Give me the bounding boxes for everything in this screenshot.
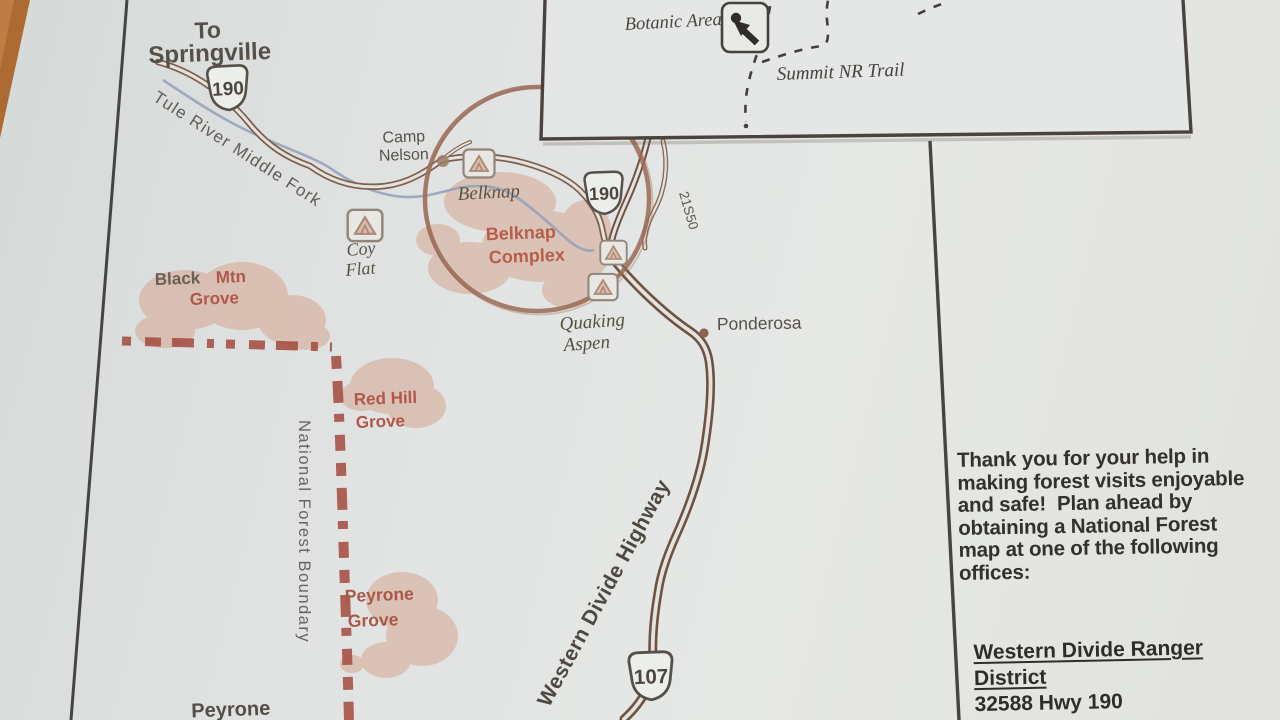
forest-boundary-dashes (122, 341, 349, 720)
peyrone-grove-label-2: Grove (347, 609, 399, 631)
peyrone-grove-label-1: Peyrone (344, 584, 414, 606)
black-mtn-label-word2: Mtn (215, 267, 246, 287)
highway-190-shield-west: 190 (207, 65, 249, 111)
photographed-forest-map-page: Botanic Area Summit NR Trail 190 190 107… (0, 0, 1280, 720)
coy-flat-label-1: Coy (346, 238, 377, 260)
belknap-complex-label-1: Belknap (485, 222, 556, 244)
black-mtn-label-grove: Grove (189, 288, 239, 309)
quaking-aspen-label-1: Quaking (559, 309, 626, 335)
coy-flat-label-2: Flat (344, 257, 378, 280)
red-hill-grove-label-2: Grove (355, 411, 405, 432)
inset-panel: Botanic Area Summit NR Trail (541, 0, 1191, 144)
ponderosa-label: Ponderosa (717, 313, 802, 334)
camp-nelson-junction-dot (437, 155, 449, 167)
map-left-border (71, 0, 127, 720)
ponderosa-dot (699, 328, 708, 337)
botanic-area-icon (722, 3, 768, 52)
belknap-complex-label-2: Complex (488, 245, 565, 268)
map-right-border (930, 141, 959, 720)
highway-107-shield: 107 (629, 652, 674, 701)
camp-nelson-label-1: Camp (382, 128, 425, 146)
ranger-district-office: Western Divide Ranger District 32588 Hwy… (973, 634, 1275, 718)
svg-text:107: 107 (634, 665, 669, 689)
svg-text:190: 190 (212, 78, 245, 101)
map-canvas: Botanic Area Summit NR Trail 190 190 107… (0, 0, 1280, 720)
belknap-label: Belknap (457, 181, 520, 205)
campground-icon-coy-flat (348, 210, 383, 241)
quaking-aspen-label-2: Aspen (561, 332, 611, 356)
springville-label: Springville (148, 38, 272, 69)
red-hill-grove-label-1: Red Hill (353, 388, 417, 409)
campground-icon-quaking-aspen-1 (600, 241, 626, 265)
black-mtn-label-word1: Black (154, 268, 201, 289)
peyrone-label: Peyrone (191, 698, 271, 720)
svg-text:190: 190 (589, 183, 620, 204)
inset-summit-trail-label: Summit NR Trail (776, 60, 904, 85)
trail-end-dot (744, 124, 749, 129)
forest-road-21s50-label: 21S50 (676, 190, 701, 232)
forest-visit-message: Thank you for your help in making forest… (957, 444, 1280, 585)
national-forest-boundary-label: National Forest Boundary (295, 420, 313, 643)
camp-nelson-label-2: Nelson (379, 146, 429, 165)
campground-icon-quaking-aspen-2 (588, 274, 617, 300)
campground-icon-belknap (464, 150, 495, 178)
